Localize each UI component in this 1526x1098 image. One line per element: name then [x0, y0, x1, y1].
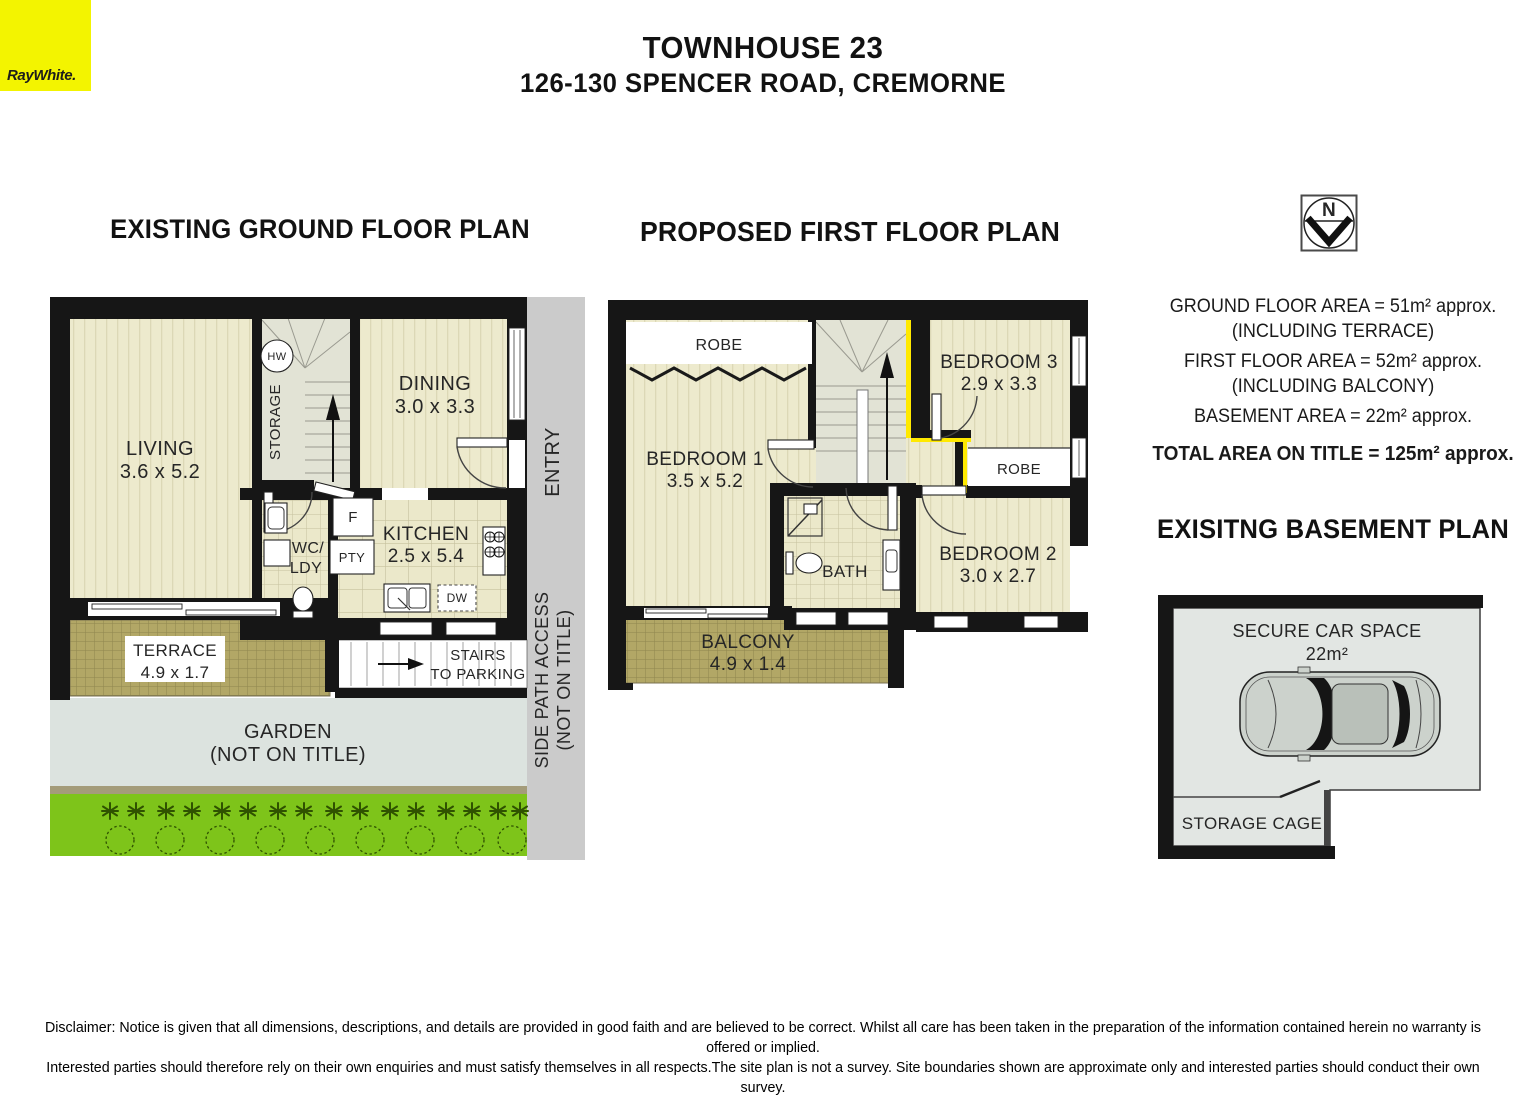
- toilet-tank-1f: [786, 552, 793, 574]
- bath-door-leaf: [888, 486, 897, 530]
- toilet-bowl-1f: [796, 553, 822, 573]
- wc-label-2: LDY: [290, 560, 322, 577]
- area-first: FIRST FLOOR AREA = 52m² approx.: [1146, 349, 1520, 374]
- bedroom1-slider-panel-2: [708, 614, 768, 618]
- side-path-label-2: (NOT ON TITLE): [554, 610, 574, 751]
- side-path-label-1: SIDE PATH ACCESS: [532, 592, 552, 769]
- page-subtitle: 126-130 SPENCER ROAD, CREMORNE: [38, 68, 1488, 99]
- car-icon: [1240, 667, 1440, 761]
- living-slider-panel-1: [92, 604, 182, 609]
- disclaimer-line-1: Disclaimer: Notice is given that all dim…: [38, 1018, 1488, 1058]
- cage-side-wall: [1324, 790, 1330, 846]
- basement-plan-heading: EXISITNG BASEMENT PLAN: [1150, 514, 1517, 545]
- robe-right-label: ROBE: [997, 461, 1041, 478]
- ground-floor-plan: HW STORAGE LIVING 3.6 x 5.2 DINING 3.0 x…: [40, 290, 600, 870]
- kitchen-dims: 2.5 x 5.4: [388, 546, 465, 567]
- garden-label-1: GARDEN: [244, 721, 332, 743]
- disclaimer-line-2: Interested parties should therefore rely…: [38, 1058, 1488, 1098]
- wc-label-1: WC/: [292, 540, 324, 557]
- washing-machine: [264, 540, 290, 566]
- bedroom3-door-leaf: [932, 394, 941, 440]
- bedroom2-door-leaf: [922, 486, 966, 495]
- entry-label: ENTRY: [542, 427, 564, 496]
- area-ground-note: (INCLUDING TERRACE): [1146, 319, 1520, 344]
- first-plan-heading: PROPOSED FIRST FLOOR PLAN: [613, 216, 1088, 248]
- terrace-dims: 4.9 x 1.7: [141, 663, 210, 682]
- balcony-dims: 4.9 x 1.4: [710, 654, 787, 675]
- shower-head: [804, 504, 817, 514]
- kitchen-serving-gap: [382, 488, 428, 500]
- bedroom2-label: BEDROOM 2: [939, 544, 1057, 565]
- car-space-size: 22m²: [1306, 644, 1349, 664]
- page-title: TOWNHOUSE 23: [38, 30, 1488, 66]
- dining-label: DINING: [399, 373, 471, 395]
- bedroom1-label: BEDROOM 1: [646, 449, 764, 470]
- area-first-note: (INCLUDING BALCONY): [1146, 374, 1520, 399]
- bedroom1-slider-panel-1: [646, 609, 706, 613]
- ground-plan-heading: EXISTING GROUND FLOOR PLAN: [54, 214, 586, 245]
- storage-cage-label: STORAGE CAGE: [1182, 814, 1323, 833]
- north-letter: N: [1322, 200, 1336, 221]
- dishwasher-label: DW: [447, 591, 468, 605]
- hw-label: HW: [267, 351, 286, 363]
- stair-railing: [857, 390, 868, 496]
- garden-grass-strip: [50, 794, 527, 856]
- entry-door-leaf: [457, 438, 507, 447]
- bath-label: BATH: [822, 562, 868, 581]
- garden-edge: [50, 786, 527, 794]
- area-ground: GROUND FLOOR AREA = 51m² approx.: [1146, 294, 1520, 319]
- kitchen-window-2: [446, 622, 496, 635]
- bedroom1-dims: 3.5 x 5.2: [667, 471, 743, 492]
- entry-door-gap: [509, 440, 525, 488]
- robe-top-label: ROBE: [696, 337, 743, 354]
- bath-window-1: [796, 612, 836, 625]
- pantry-label: PTY: [339, 550, 365, 565]
- dining-window: [509, 328, 525, 420]
- balcony-label: BALCONY: [701, 632, 795, 653]
- garden-label-2: (NOT ON TITLE): [210, 744, 366, 766]
- stairs-parking-label-2: TO PARKING: [430, 666, 525, 683]
- toilet-bowl: [293, 587, 313, 611]
- terrace-label: TERRACE: [133, 641, 217, 660]
- storage-label: STORAGE: [267, 384, 284, 460]
- bedroom2-dims: 3.0 x 2.7: [960, 566, 1036, 587]
- bedroom1-door-leaf: [768, 440, 814, 449]
- bath-window-2: [848, 612, 888, 625]
- bedroom2-window-2: [1024, 616, 1058, 628]
- basement-plan: SECURE CAR SPACE 22m² STORAGE CAGE: [1140, 580, 1526, 870]
- fridge-label: F: [348, 509, 358, 526]
- area-basement: BASEMENT AREA = 22m² approx.: [1146, 404, 1520, 429]
- disclaimer: Disclaimer: Notice is given that all dim…: [38, 1018, 1488, 1098]
- stairs-parking-label-1: STAIRS: [450, 647, 505, 664]
- living-label: LIVING: [126, 438, 194, 460]
- dining-dims: 3.0 x 3.3: [395, 396, 475, 418]
- toilet-tank: [293, 611, 313, 618]
- living-slider-panel-2: [186, 610, 276, 615]
- bedroom2-window-1: [934, 616, 968, 628]
- side-path-strip: [527, 297, 585, 860]
- kitchen-label: KITCHEN: [383, 524, 469, 545]
- living-dims: 3.6 x 5.2: [120, 461, 200, 483]
- bedroom3-dims: 2.9 x 3.3: [961, 374, 1037, 395]
- north-arrow-icon: N: [1300, 194, 1358, 252]
- area-summary: GROUND FLOOR AREA = 51m² approx. (INCLUD…: [1146, 294, 1520, 467]
- area-total: TOTAL AREA ON TITLE = 125m² approx.: [1146, 442, 1520, 467]
- first-floor-plan: ROBE BEDROOM 1 3.5 x 5.2 BEDROOM 3 2.9 x…: [600, 290, 1100, 710]
- kitchen-window-1: [380, 622, 432, 635]
- car-space-label: SECURE CAR SPACE: [1232, 621, 1421, 641]
- bedroom3-label: BEDROOM 3: [940, 352, 1058, 373]
